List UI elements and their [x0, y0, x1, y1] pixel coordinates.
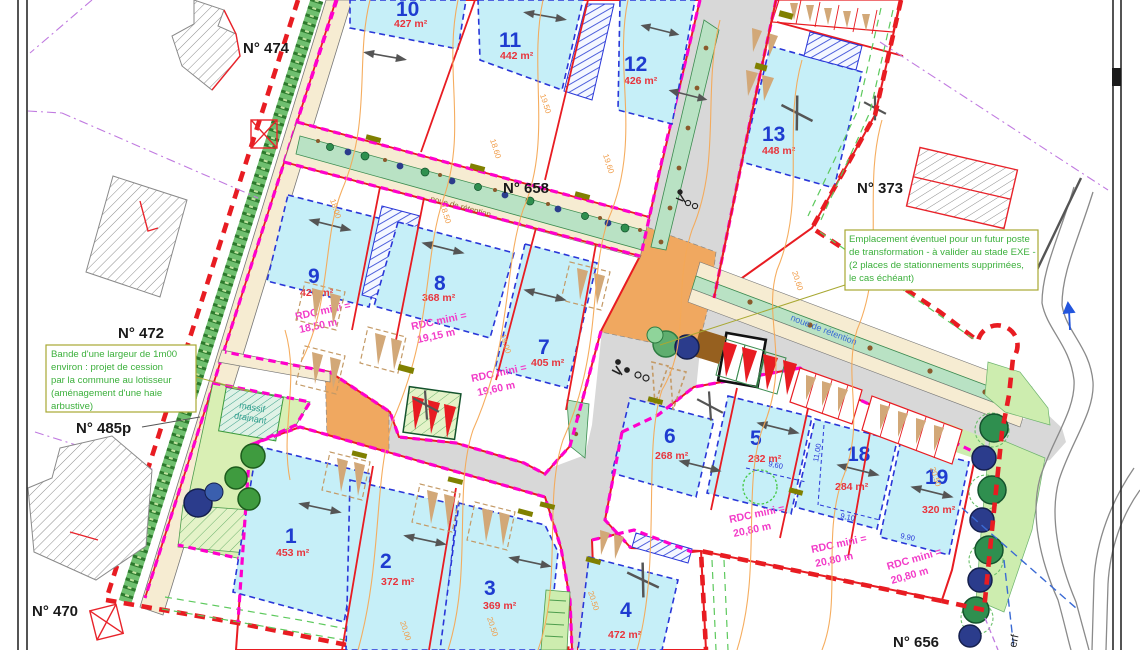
svg-text:par la commune au lotisseur: par la commune au lotisseur	[51, 375, 172, 386]
svg-text:426 m²: 426 m²	[624, 75, 658, 87]
svg-text:12: 12	[624, 53, 647, 76]
svg-text:7: 7	[538, 336, 550, 359]
svg-text:5: 5	[750, 427, 762, 450]
svg-text:N° 373: N° 373	[857, 180, 903, 197]
svg-text:4: 4	[620, 599, 632, 622]
svg-text:3: 3	[484, 577, 496, 600]
svg-text:N° 656: N° 656	[893, 634, 939, 650]
svg-text:368 m²: 368 m²	[422, 292, 456, 304]
svg-text:1: 1	[285, 525, 297, 548]
svg-text:N° 485p: N° 485p	[76, 420, 131, 437]
svg-text:11: 11	[499, 29, 522, 52]
svg-text:(2 places de stationnements su: (2 places de stationnements supprimées,	[849, 260, 1024, 271]
svg-text:448 m²: 448 m²	[762, 145, 796, 157]
svg-text:environ : projet de cession: environ : projet de cession	[51, 362, 163, 373]
svg-text:372 m²: 372 m²	[381, 576, 415, 588]
svg-text:405 m²: 405 m²	[531, 357, 565, 369]
svg-text:453 m²: 453 m²	[276, 547, 310, 559]
svg-text:de transformation - à valider: de transformation - à valider au stade E…	[849, 247, 1036, 258]
svg-text:N° 474: N° 474	[243, 40, 290, 57]
svg-text:320 m²: 320 m²	[922, 504, 956, 516]
svg-text:442 m²: 442 m²	[500, 50, 534, 62]
svg-text:472 m²: 472 m²	[608, 629, 642, 641]
svg-text:Emplacement éventuel pour un f: Emplacement éventuel pour un futur poste	[849, 234, 1030, 245]
svg-text:(aménagement d'une haie: (aménagement d'une haie	[51, 388, 162, 399]
svg-text:le cas échéant): le cas échéant)	[849, 273, 914, 284]
svg-text:Bande d'une largeur de 1m00: Bande d'une largeur de 1m00	[51, 349, 177, 360]
svg-text:6: 6	[664, 425, 676, 448]
svg-text:N° 658: N° 658	[503, 180, 549, 197]
svg-text:arbustive): arbustive)	[51, 401, 93, 412]
svg-text:369 m²: 369 m²	[483, 600, 517, 612]
svg-text:13: 13	[762, 123, 785, 146]
svg-text:N° 472: N° 472	[118, 325, 164, 342]
svg-text:N° 470: N° 470	[32, 603, 78, 620]
svg-text:2: 2	[380, 550, 392, 573]
svg-text:427 m²: 427 m²	[394, 18, 428, 30]
